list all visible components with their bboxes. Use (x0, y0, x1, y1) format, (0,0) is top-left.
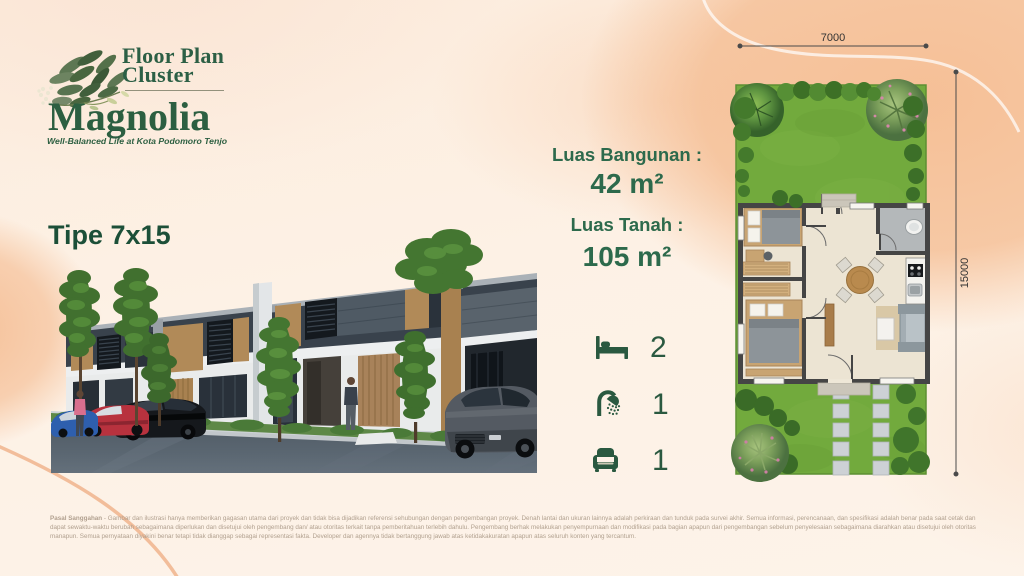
svg-text:15000: 15000 (959, 258, 971, 289)
svg-text:7000: 7000 (821, 32, 845, 44)
